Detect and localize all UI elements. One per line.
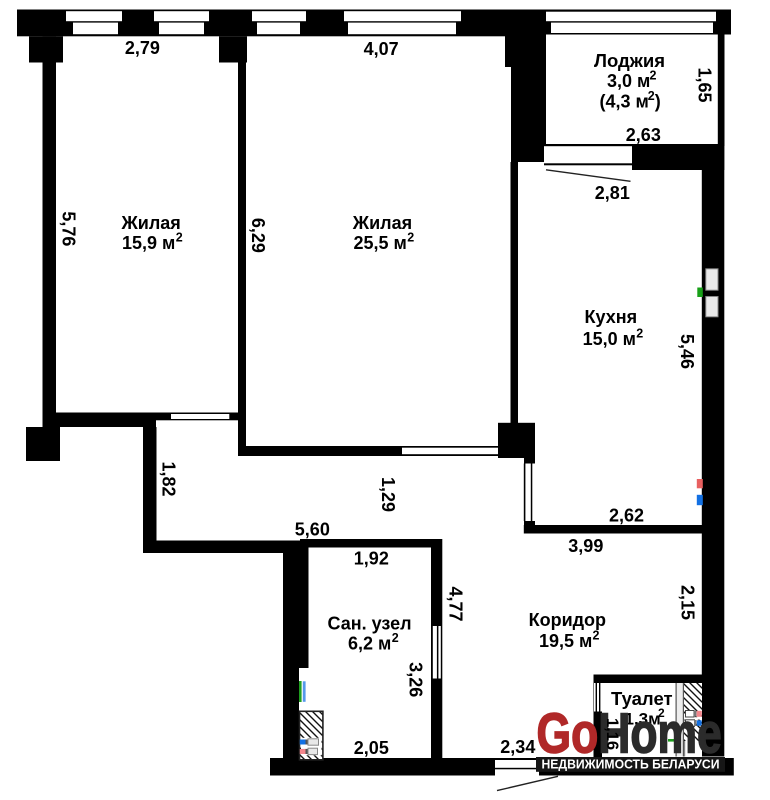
svg-text:2: 2 — [593, 629, 600, 643]
svg-text:2: 2 — [650, 69, 657, 83]
svg-text:2,34: 2,34 — [500, 737, 535, 757]
svg-text:5,60: 5,60 — [295, 520, 330, 540]
svg-text:6,29: 6,29 — [248, 218, 268, 253]
svg-text:Жилая: Жилая — [352, 213, 412, 233]
svg-text:1,82: 1,82 — [159, 461, 179, 496]
svg-text:2: 2 — [648, 89, 655, 103]
svg-text:2,81: 2,81 — [595, 183, 630, 203]
svg-text:3,26: 3,26 — [405, 662, 425, 697]
svg-text:GoHome: GoHome — [537, 701, 722, 765]
svg-text:2: 2 — [407, 231, 414, 245]
svg-text:1,92: 1,92 — [354, 549, 389, 569]
svg-text:5,46: 5,46 — [677, 334, 697, 369]
svg-text:15,0 м: 15,0 м — [583, 329, 636, 349]
svg-text:2: 2 — [636, 327, 643, 341]
svg-text:1,16: 1,16 — [603, 718, 621, 750]
svg-text:3,0 м: 3,0 м — [607, 71, 650, 91]
svg-text:Жилая: Жилая — [121, 213, 181, 233]
svg-text:(4,3 м: (4,3 м — [600, 92, 649, 112]
svg-text:2,15: 2,15 — [678, 585, 698, 620]
svg-text:15,9 м: 15,9 м — [122, 233, 175, 253]
svg-text:1,65: 1,65 — [694, 67, 714, 102]
svg-text:Кухня: Кухня — [585, 307, 638, 327]
svg-text:Коридор: Коридор — [529, 610, 606, 630]
svg-text:3,99: 3,99 — [568, 536, 603, 556]
svg-text:19,5 м: 19,5 м — [539, 631, 592, 651]
svg-text:1,29: 1,29 — [378, 477, 398, 512]
svg-text:2,63: 2,63 — [626, 125, 661, 145]
svg-text:НЕДВИЖИМОСТЬ БЕЛАРУСИ: НЕДВИЖИМОСТЬ БЕЛАРУСИ — [542, 757, 720, 772]
svg-text:2,62: 2,62 — [609, 505, 644, 525]
svg-text:4,07: 4,07 — [364, 39, 399, 59]
svg-text:4,77: 4,77 — [446, 586, 466, 621]
svg-text:25,5 м: 25,5 м — [354, 233, 407, 253]
svg-text:2: 2 — [176, 231, 183, 245]
svg-text:2: 2 — [392, 631, 399, 645]
svg-text:5,76: 5,76 — [59, 211, 79, 246]
svg-text:Сан. узел: Сан. узел — [328, 614, 412, 634]
svg-text:2,05: 2,05 — [354, 738, 389, 758]
svg-text:6,2 м: 6,2 м — [348, 634, 391, 654]
svg-text:): ) — [655, 92, 661, 112]
svg-text:2,79: 2,79 — [125, 38, 160, 58]
